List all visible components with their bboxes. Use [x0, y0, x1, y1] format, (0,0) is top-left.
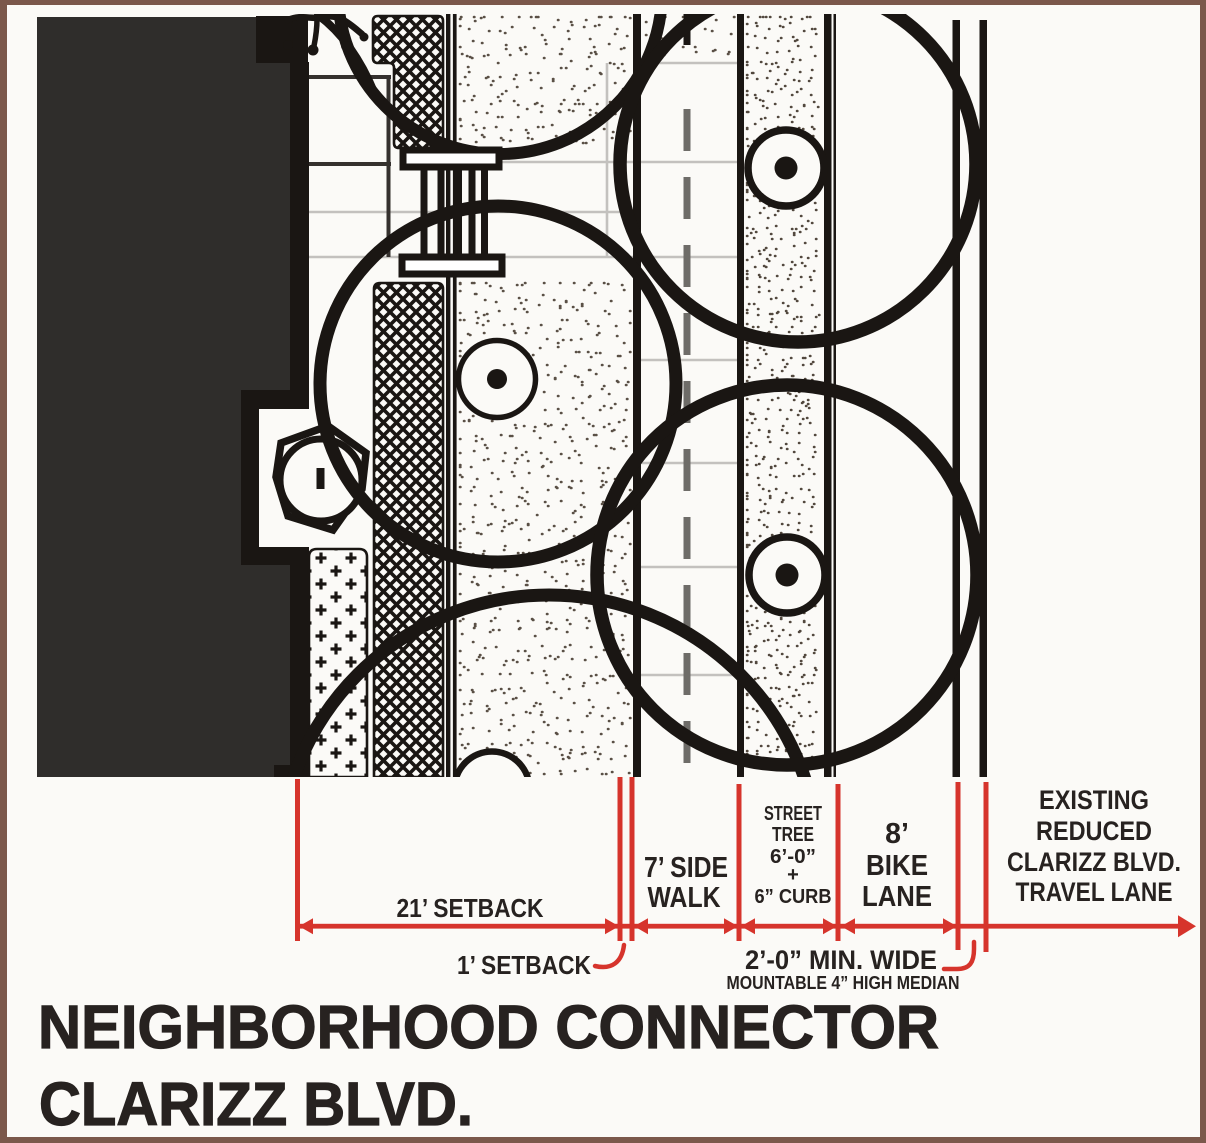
svg-text:1’ SETBACK: 1’ SETBACK	[457, 950, 591, 980]
svg-text:+: +	[787, 864, 799, 886]
svg-text:STREET: STREET	[764, 803, 822, 825]
svg-text:TRAVEL LANE: TRAVEL LANE	[1016, 877, 1173, 907]
svg-text:TREE: TREE	[772, 824, 814, 846]
svg-text:WALK: WALK	[648, 882, 721, 914]
svg-text:CLARIZZ BLVD.: CLARIZZ BLVD.	[39, 1070, 473, 1139]
svg-text:2’-0” MIN. WIDE: 2’-0” MIN. WIDE	[745, 945, 937, 975]
svg-text:6” CURB: 6” CURB	[755, 886, 832, 908]
svg-text:LANE: LANE	[862, 881, 932, 913]
svg-text:EXISTING: EXISTING	[1039, 785, 1149, 815]
svg-text:7’ SIDE: 7’ SIDE	[644, 852, 728, 884]
svg-text:CLARIZZ BLVD.: CLARIZZ BLVD.	[1007, 847, 1181, 877]
svg-text:BIKE: BIKE	[866, 850, 928, 882]
svg-text:NEIGHBORHOOD CONNECTOR: NEIGHBORHOOD CONNECTOR	[38, 993, 939, 1062]
svg-text:8’: 8’	[885, 818, 909, 850]
svg-text:21’ SETBACK: 21’ SETBACK	[397, 893, 544, 923]
svg-text:MOUNTABLE 4” HIGH MEDIAN: MOUNTABLE 4” HIGH MEDIAN	[727, 972, 960, 993]
svg-text:REDUCED: REDUCED	[1036, 816, 1152, 846]
